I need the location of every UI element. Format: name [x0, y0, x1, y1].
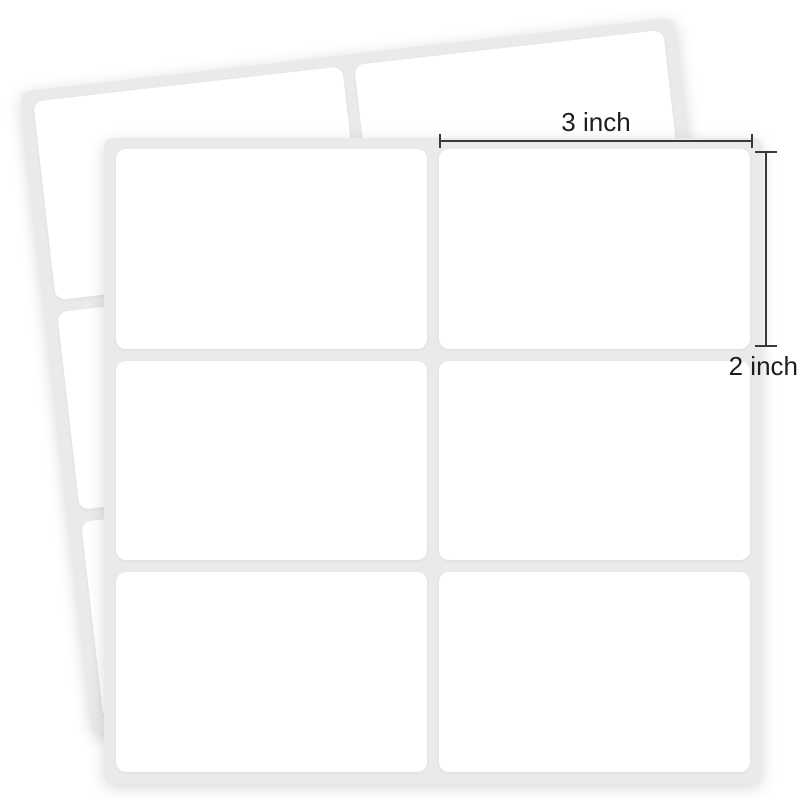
height-dimension-line: [765, 151, 767, 347]
blank-label: [439, 572, 750, 772]
dimension-cap-bottom: [755, 345, 777, 347]
label-sheet-front: [104, 138, 762, 784]
blank-label: [116, 361, 427, 561]
product-image: 3 inch 2 inch: [0, 0, 800, 800]
blank-label: [439, 149, 750, 349]
width-dimension-line: [439, 140, 753, 142]
height-dimension-label: 2 inch: [698, 351, 798, 381]
blank-label: [116, 149, 427, 349]
width-dimension-label: 3 inch: [439, 107, 753, 137]
dimension-cap-top: [755, 151, 777, 153]
blank-label: [116, 572, 427, 772]
blank-label: [439, 361, 750, 561]
